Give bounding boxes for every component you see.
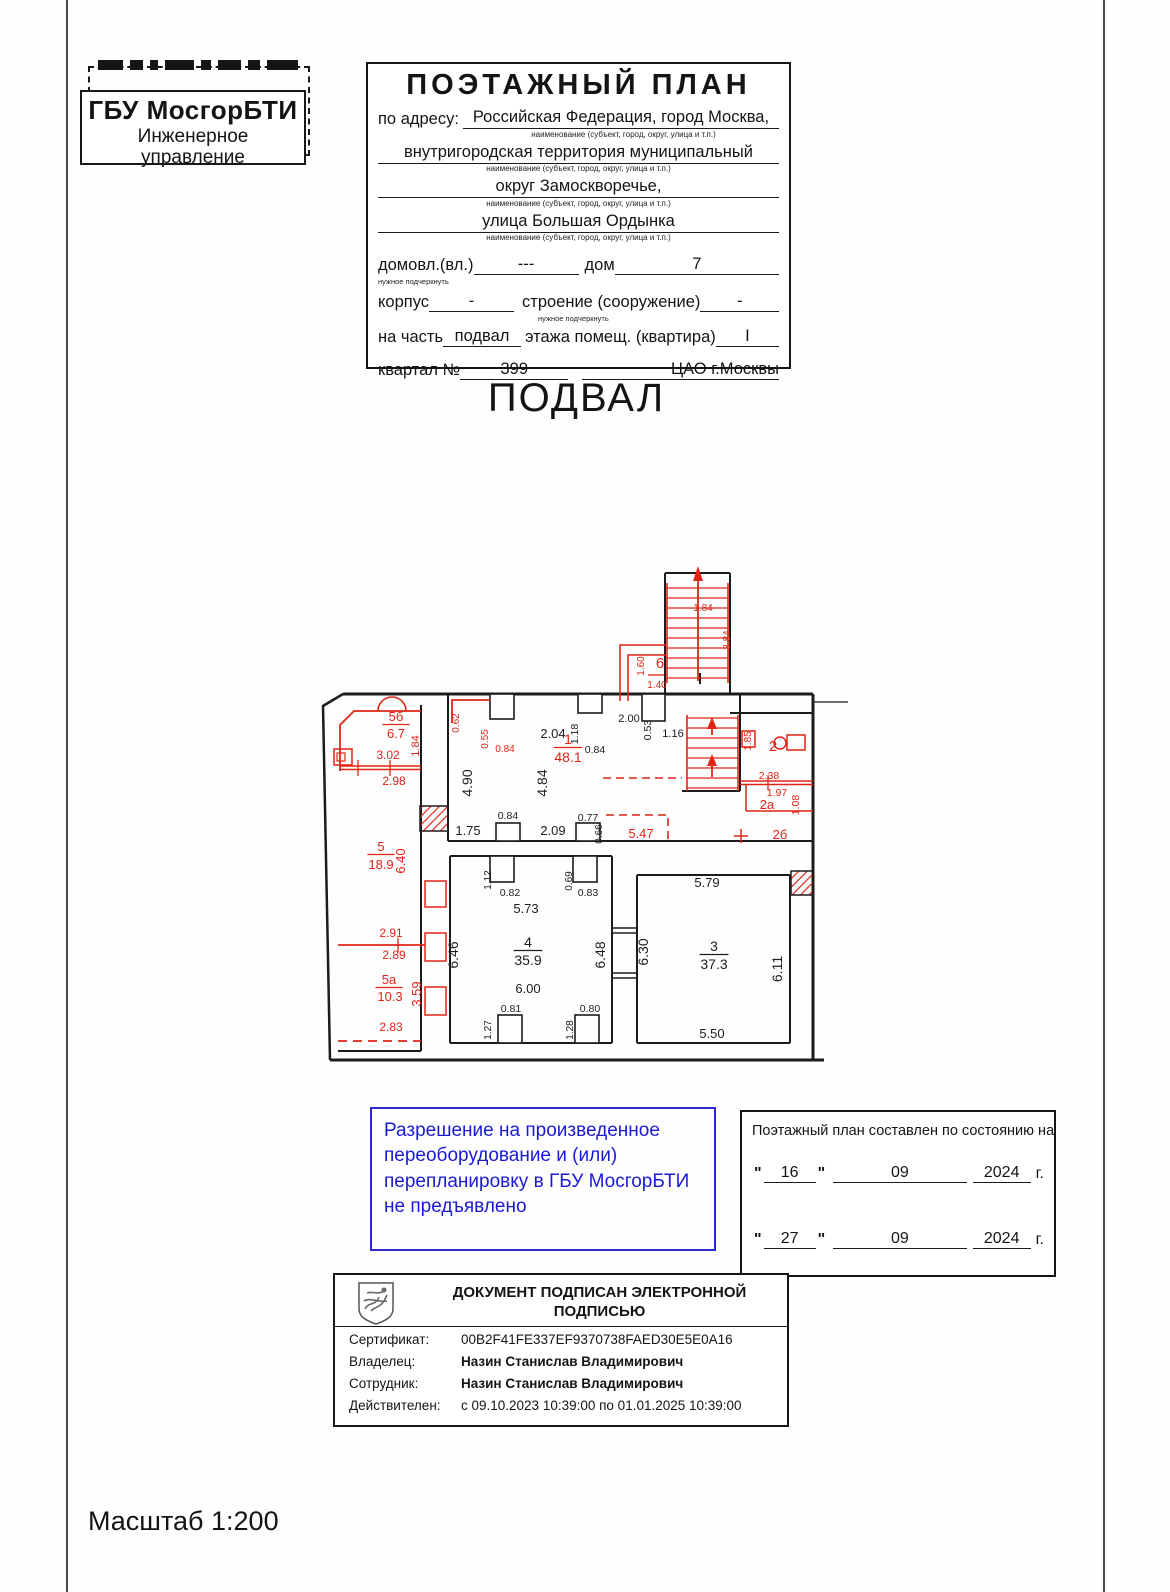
- address-caption-1: наименование (субъект, город, округ, ули…: [458, 131, 789, 139]
- signature-title-line2: ПОДПИСЬЮ: [420, 1303, 779, 1322]
- plan-label: 3.84: [722, 630, 733, 650]
- stroenie-label: строение (сооружение): [514, 293, 700, 312]
- plan-label: 1.16: [662, 728, 683, 740]
- plan-label: 2: [769, 738, 777, 755]
- status-month: 09: [833, 1164, 966, 1183]
- plan-label: 1.27: [483, 1020, 494, 1040]
- plan-label: 1.28: [565, 1020, 576, 1040]
- plan-label: 48.1: [554, 749, 581, 765]
- plan-label: 0.81: [501, 1003, 522, 1015]
- plan-label: 2.04: [540, 726, 565, 741]
- plan-label: 5.50: [699, 1026, 724, 1041]
- plan-label: 5: [377, 839, 384, 854]
- plan-label: 1: [564, 731, 572, 747]
- plan-label: 35.9: [514, 952, 541, 968]
- plan-label: 2б: [773, 827, 788, 842]
- wall-niches: [425, 881, 446, 1015]
- status-year: 2024: [973, 1164, 1031, 1183]
- floor-title: ПОДВАЛ: [366, 376, 787, 421]
- address-line-4: улица Большая Ордынка: [378, 212, 779, 233]
- dom-value: 7: [615, 255, 779, 275]
- plan-label: 1.60: [636, 656, 647, 676]
- cut-off-text-marks: [98, 60, 298, 71]
- plan-label: 0.80: [580, 1003, 601, 1015]
- stroenie-value: -: [700, 292, 779, 312]
- korpus-value: -: [429, 292, 514, 312]
- plan-label: 2.83: [379, 1020, 403, 1034]
- page-frame-right: [1103, 0, 1105, 1592]
- address-line-3: округ Замоскворечье,: [378, 177, 779, 198]
- plan-label: 1.40: [647, 680, 667, 691]
- plan-label: 5б: [389, 709, 404, 724]
- status-title: Поэтажный план составлен по состоянию на: [752, 1123, 1044, 1139]
- permission-line-3: перепланировку в ГБУ МосгорБТИ: [384, 1169, 702, 1194]
- signature-row: Сотрудник: Назин Станислав Владимирович: [349, 1376, 779, 1391]
- plan-label: 0.69: [564, 871, 575, 891]
- page-frame-left: [66, 0, 68, 1592]
- plan-label: 2.38: [759, 770, 780, 782]
- address-line-1: Российская Федерация, город Москва,: [463, 108, 779, 129]
- signature-row: Сертификат: 00B2F41FE337EF9370738FAED30E…: [349, 1332, 779, 1347]
- etazh-label: этажа помещ. (квартира): [521, 328, 716, 347]
- permission-line-1: Разрешение на произведенное: [384, 1118, 702, 1143]
- plan-label: 5.73: [513, 901, 538, 916]
- floor-plan: 2.041.180.842.000.531.164.904.841.750.84…: [310, 553, 850, 1085]
- plan-label: 6.00: [515, 981, 540, 996]
- status-day: 16: [764, 1164, 816, 1183]
- hatched-wall-section: [791, 871, 813, 895]
- address-caption-4: наименование (субъект, город, округ, ули…: [368, 234, 789, 242]
- signature-block: ДОКУМЕНТ ПОДПИСАН ЭЛЕКТРОННОЙ ПОДПИСЬЮ С…: [333, 1273, 789, 1427]
- year-suffix: г.: [1031, 1165, 1044, 1183]
- plan-label: 37.3: [700, 956, 727, 972]
- plan-label: 6.30: [635, 938, 651, 965]
- form-title: ПОЭТАЖНЫЙ ПЛАН: [368, 69, 789, 102]
- plan-label: 5.47: [628, 826, 653, 841]
- signature-row-label: Сотрудник:: [349, 1376, 461, 1391]
- plan-label: 18.9: [368, 857, 393, 872]
- plan-label: 4.90: [459, 769, 475, 796]
- org-name: ГБУ МосгорБТИ: [82, 95, 304, 126]
- signature-row-value: с 09.10.2023 10:39:00 по 01.01.2025 10:3…: [461, 1398, 779, 1413]
- plan-label: 6.11: [769, 956, 785, 982]
- plan-label: 1.84: [410, 735, 422, 756]
- dom-label: дом: [579, 256, 615, 275]
- address-caption-2: наименование (субъект, город, округ, ули…: [368, 165, 789, 173]
- plan-label: 0.62: [451, 713, 462, 733]
- status-month: 09: [833, 1230, 966, 1249]
- address-line-2: внутригородская территория муниципальный: [378, 143, 779, 164]
- signature-divider: [335, 1326, 787, 1327]
- document-page: ГБУ МосгорБТИ Инженерное управление ПОЭТ…: [0, 0, 1170, 1592]
- korpus-label: корпус: [378, 293, 429, 312]
- plan-label: 3.59: [409, 981, 424, 1006]
- permission-line-2: переоборудование и (или): [384, 1143, 702, 1168]
- plan-label: 10.3: [377, 989, 402, 1004]
- plan-label: 1.84: [693, 603, 713, 614]
- plan-label: 0.53: [642, 720, 654, 741]
- plan-label: 0.84: [498, 810, 519, 822]
- domovl-value: ---: [474, 255, 579, 275]
- org-dept-line1: Инженерное: [82, 126, 304, 147]
- plan-label: 0.84: [585, 744, 606, 756]
- plan-label: 6.7: [387, 726, 405, 741]
- plan-label: 1.85: [743, 731, 754, 751]
- org-stamp: ГБУ МосгорБТИ Инженерное управление: [80, 90, 306, 165]
- plan-label: 0.83: [578, 887, 599, 899]
- status-box: Поэтажный план составлен по состоянию на…: [740, 1110, 1056, 1277]
- status-date-row: " 16 " 09 2024 г.: [752, 1164, 1044, 1183]
- underline-note-1: нужное подчеркнуть: [378, 278, 449, 286]
- plan-label: 3: [710, 938, 718, 954]
- plan-label: 4: [524, 934, 532, 950]
- signature-rows: Сертификат: 00B2F41FE337EF9370738FAED30E…: [349, 1332, 779, 1420]
- signature-row-value: Назин Станислав Владимирович: [461, 1354, 779, 1369]
- plan-label: 2а: [760, 797, 775, 812]
- hatched-wall-section: [420, 806, 448, 831]
- signature-row-value: Назин Станислав Владимирович: [461, 1376, 779, 1391]
- quote-mark: ": [816, 1231, 828, 1249]
- plan-label: 0.55: [480, 729, 491, 749]
- scale-label: Масштаб 1:200: [88, 1506, 279, 1537]
- signature-row-label: Действителен:: [349, 1398, 461, 1413]
- plan-label: 2.09: [540, 823, 565, 838]
- signature-title: ДОКУМЕНТ ПОДПИСАН ЭЛЕКТРОННОЙ ПОДПИСЬЮ: [420, 1284, 779, 1322]
- signature-row: Действителен: с 09.10.2023 10:39:00 по 0…: [349, 1398, 779, 1413]
- moscow-coat-of-arms-icon: [351, 1281, 401, 1325]
- plan-label: 4.84: [534, 769, 550, 796]
- plan-label: 3.02: [376, 748, 400, 762]
- plan-label: 6.40: [393, 848, 408, 873]
- underline-note-2: нужное подчеркнуть: [538, 315, 609, 323]
- status-date-row: " 27 " 09 2024 г.: [752, 1230, 1044, 1249]
- signature-row-value: 00B2F41FE337EF9370738FAED30E5E0A16: [461, 1332, 779, 1347]
- nachast-value: подвал: [443, 327, 521, 347]
- toilet-icon: [787, 735, 805, 750]
- plan-label: 6: [656, 655, 664, 672]
- quote-mark: ": [752, 1231, 764, 1249]
- plan-label: 6.48: [592, 941, 608, 968]
- signature-row: Владелец: Назин Станислав Владимирович: [349, 1354, 779, 1369]
- permission-note: Разрешение на произведенное переоборудов…: [370, 1107, 716, 1251]
- status-day: 27: [764, 1230, 816, 1249]
- plan-label: 1.08: [790, 795, 802, 816]
- plan-label: 2.00: [618, 713, 639, 725]
- plan-label: 2.91: [379, 926, 403, 940]
- plan-label: 6.46: [445, 941, 461, 968]
- plan-label: 0.77: [578, 812, 599, 824]
- plan-label: 2.89: [382, 948, 406, 962]
- plan-label: 0.66: [594, 824, 605, 844]
- stairs-up-arrow-icon: [693, 566, 703, 681]
- nachast-label: на часть: [378, 328, 443, 347]
- plan-label: 0.82: [500, 887, 521, 899]
- domovl-label: домовл.(вл.): [378, 256, 474, 275]
- address-label: по адресу:: [378, 110, 463, 129]
- quote-mark: ": [816, 1165, 828, 1183]
- plan-label: 2.98: [382, 774, 406, 788]
- header-form: ПОЭТАЖНЫЙ ПЛАН по адресу: Российская Фед…: [366, 62, 791, 369]
- year-suffix: г.: [1031, 1231, 1044, 1249]
- signature-row-label: Сертификат:: [349, 1332, 461, 1347]
- kvartira-value: I: [716, 327, 779, 347]
- address-caption-3: наименование (субъект, город, округ, ули…: [368, 200, 789, 208]
- org-dept-line2: управление: [82, 147, 304, 168]
- plan-label: 0.84: [495, 744, 515, 755]
- signature-title-line1: ДОКУМЕНТ ПОДПИСАН ЭЛЕКТРОННОЙ: [420, 1284, 779, 1303]
- plan-label: 5.79: [694, 875, 719, 890]
- plan-label: 5а: [382, 972, 397, 987]
- quote-mark: ": [752, 1165, 764, 1183]
- interior-walls: [338, 573, 813, 1051]
- signature-row-label: Владелец:: [349, 1354, 461, 1369]
- plan-label: 1.75: [455, 823, 480, 838]
- plan-label: 1.12: [483, 870, 494, 890]
- status-year: 2024: [973, 1230, 1031, 1249]
- permission-line-4: не предъявлено: [384, 1194, 702, 1219]
